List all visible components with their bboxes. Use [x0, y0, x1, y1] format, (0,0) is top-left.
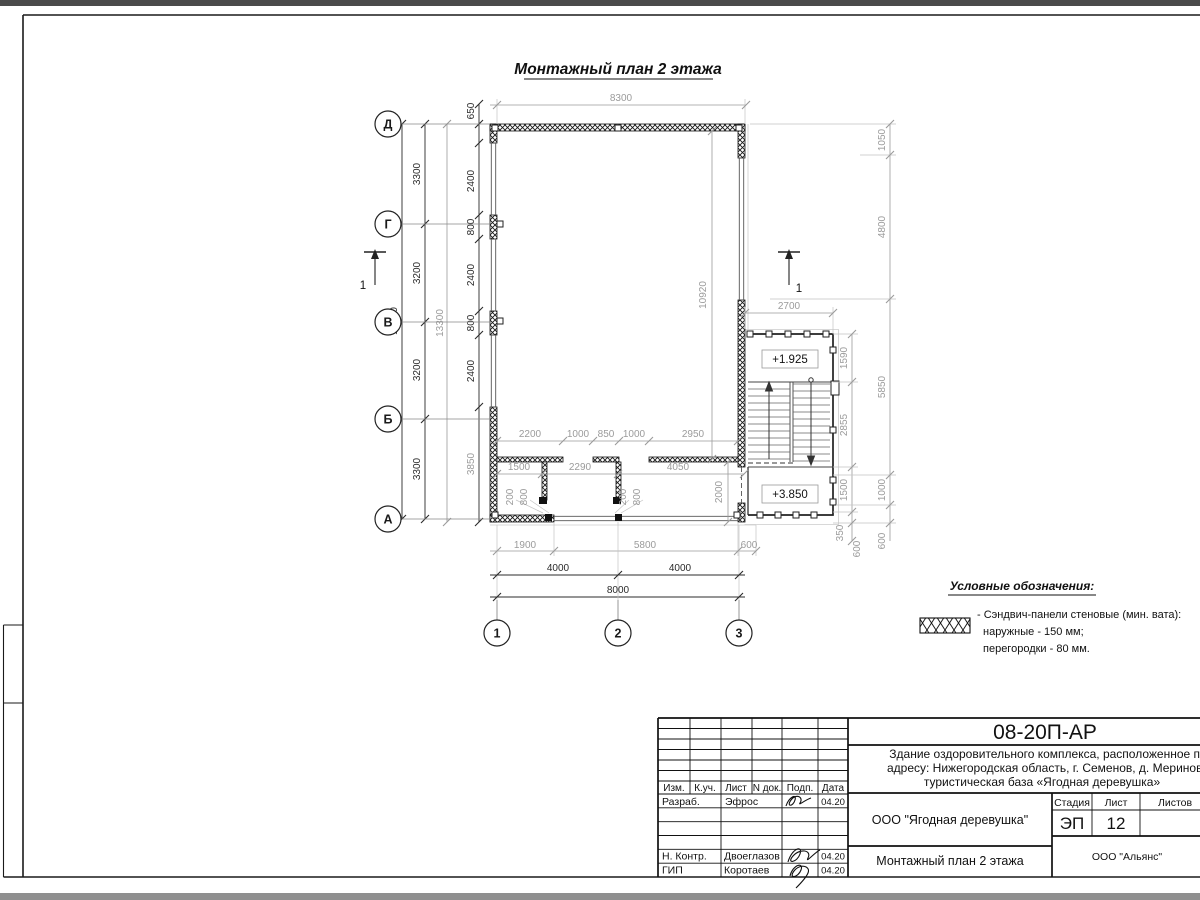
tb-sheet-value: 12 — [1107, 814, 1126, 833]
dim-wall-2400b: 2400 — [466, 263, 477, 286]
dim-door1-200: 200 — [505, 488, 516, 505]
tb-stage-label: Стадия — [1054, 797, 1090, 809]
legend-line2: наружные - 150 мм; — [983, 626, 1084, 638]
legend-hatch-swatch — [920, 618, 970, 633]
dim-right-600: 600 — [877, 532, 888, 549]
tb-doc-number: 08-20П-АР — [993, 721, 1097, 744]
dim-axis-span-3: 3200 — [412, 358, 423, 381]
axis-col-1: 1 — [494, 627, 501, 641]
dim-axis-span-1: 3300 — [412, 162, 423, 185]
dim-wall-2400a: 2400 — [466, 169, 477, 192]
dim-stair-1590: 1590 — [839, 346, 850, 369]
dim-axis-span-4: 3300 — [412, 457, 423, 480]
tb-sheet-label: Лист — [1105, 797, 1128, 809]
section-label-left: 1 — [360, 280, 366, 292]
dim-door1-800: 800 — [519, 488, 530, 505]
dim-part-1000b: 1000 — [623, 429, 646, 440]
axis-row-b: Б — [384, 413, 393, 427]
tb-org: ООО "Ягодная деревушка" — [872, 813, 1028, 827]
window-chrome-bottom — [0, 893, 1200, 900]
tb-name-efros: Эфрос — [725, 796, 758, 808]
section-label-right: 1 — [796, 283, 802, 295]
dim-room-depth: 2000 — [714, 480, 725, 503]
tb-col-kuch: К.уч. — [694, 783, 716, 794]
dim-room-1500: 1500 — [508, 462, 531, 473]
stair-wall-opening — [831, 381, 839, 395]
dim-stair-350: 350 — [835, 524, 846, 541]
dim-right-5850: 5850 — [877, 375, 888, 398]
dim-right-4800: 4800 — [877, 215, 888, 238]
tb-name-korotaev: Коротаев — [724, 865, 770, 877]
axis-col-3: 3 — [736, 627, 743, 641]
dim-bottom-1900: 1900 — [514, 540, 537, 551]
tb-date-nkontr: 04.20 — [821, 852, 845, 863]
dim-door2-200: 200 — [618, 488, 629, 505]
dim-axis-span-2: 3200 — [412, 261, 423, 284]
dim-right-1000: 1000 — [877, 478, 888, 501]
dim-part-1000a: 1000 — [567, 429, 590, 440]
dim-part-2200: 2200 — [519, 429, 542, 440]
dim-part-2950: 2950 — [682, 429, 705, 440]
dim-right-1050: 1050 — [877, 128, 888, 151]
dim-wall-2400c: 2400 — [466, 359, 477, 382]
dim-room-4050: 4050 — [667, 462, 690, 473]
tb-date-gip: 04.20 — [821, 866, 845, 877]
dim-room-2290: 2290 — [569, 462, 592, 473]
elevation-upper: +1.925 — [772, 354, 808, 366]
dim-bottom-total: 8000 — [607, 585, 630, 596]
dim-stair-2855: 2855 — [839, 413, 850, 436]
dim-top-width: 8300 — [610, 93, 633, 104]
elevation-lower: +3.850 — [772, 489, 808, 501]
axis-row-a: А — [383, 513, 392, 527]
dim-wall-3850: 3850 — [466, 452, 477, 475]
tb-col-list: Лист — [725, 783, 747, 794]
axis-row-g: Г — [384, 218, 391, 232]
dim-hall-height: 10920 — [698, 281, 709, 309]
axis-row-d: Д — [384, 118, 393, 132]
legend-line1: - Сэндвич-панели стеновые (мин. вата): — [977, 609, 1181, 621]
dim-wall-650: 650 — [466, 102, 477, 119]
tb-date-razrab: 04.20 — [821, 797, 845, 808]
tb-col-podp: Подп. — [787, 783, 814, 794]
tb-col-izm: Изм. — [663, 783, 684, 794]
tb-col-ndok: N док. — [753, 783, 782, 794]
tb-role-gip: ГИП — [662, 865, 683, 877]
legend-line3: перегородки - 80 мм. — [983, 643, 1090, 655]
tb-project-line2: адресу: Нижегородская область, г. Семено… — [887, 761, 1200, 775]
dim-stair-600: 600 — [852, 540, 863, 557]
tb-stage-value: ЭП — [1060, 814, 1084, 833]
dim-bottom-4000b: 4000 — [669, 563, 692, 574]
dim-wall-800a: 800 — [466, 218, 477, 235]
axis-col-2: 2 — [615, 627, 622, 641]
plan-title: Монтажный план 2 этажа — [514, 61, 722, 79]
tb-role-nkontr: Н. Контр. — [662, 851, 707, 863]
drawing-sheet: Монтажный план 2 этажа — [0, 0, 1200, 900]
tb-sheets-label: Листов — [1158, 797, 1193, 809]
dim-door2-800: 800 — [632, 488, 643, 505]
dim-part-850: 850 — [598, 429, 615, 440]
tb-project-line1: Здание оздоровительного комплекса, распо… — [889, 747, 1200, 761]
tb-role-razrab: Разраб. — [662, 796, 700, 808]
dim-bottom-5800: 5800 — [634, 540, 657, 551]
dim-wall-800b: 800 — [466, 314, 477, 331]
tb-company: ООО "Альянс" — [1092, 851, 1162, 863]
tb-name-dvoeglazov: Двоеглазов — [724, 851, 780, 863]
dim-bottom-600: 600 — [741, 540, 758, 551]
dim-stair-1500: 1500 — [839, 478, 850, 501]
dim-stair-top: 2700 — [778, 301, 801, 312]
window-chrome-top — [0, 0, 1200, 6]
axis-row-v: В — [383, 316, 392, 330]
plan-title-text: Монтажный план 2 этажа — [514, 61, 722, 78]
dim-bottom-4000a: 4000 — [547, 563, 570, 574]
tb-col-data: Дата — [822, 783, 845, 794]
legend-title: Условные обозначения: — [950, 579, 1095, 593]
tb-project-line3: туристическая база «Ягодная деревушка» — [924, 775, 1161, 789]
tb-drawing-name: Монтажный план 2 этажа — [876, 854, 1023, 868]
dim-inner-total: 13300 — [435, 309, 446, 337]
